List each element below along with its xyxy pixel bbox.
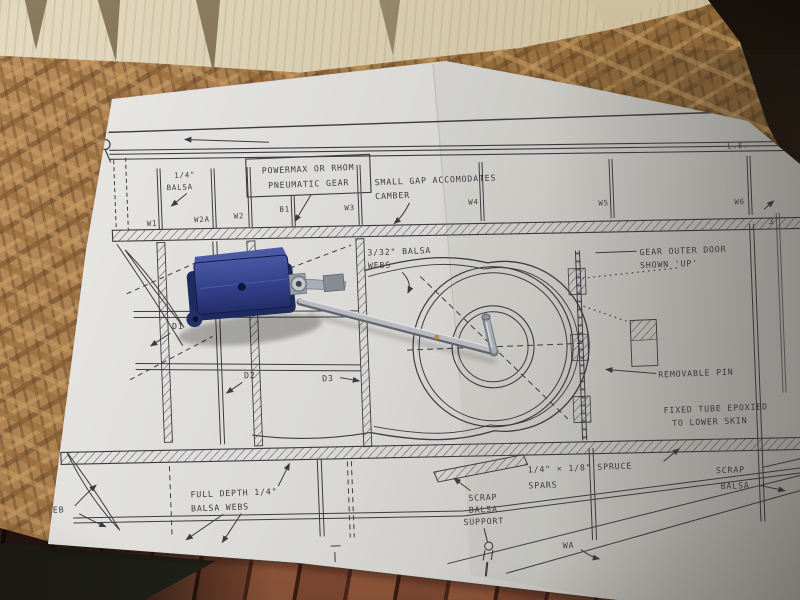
workshop-scene: L.E. W1 W2A W2 B bbox=[0, 0, 800, 600]
detail-label-d3: D3 bbox=[322, 373, 334, 383]
note-quarter-balsa-line2: BALSA bbox=[167, 182, 194, 192]
rib-label-w2a: W2A bbox=[194, 215, 210, 225]
note-scrap-support-line1: SCRAP bbox=[468, 492, 497, 503]
note-small-gap-line2: CAMBER bbox=[375, 190, 410, 201]
plan-photo: L.E. W1 W2A W2 B bbox=[0, 0, 800, 600]
rib-label-w4: W4 bbox=[468, 197, 479, 206]
note-scrap-support-line3: SUPPORT bbox=[463, 515, 504, 527]
note-quarter-balsa-line1: 1/4" bbox=[174, 170, 195, 180]
web-label: WEB bbox=[47, 504, 65, 515]
rib-label-w2: W2 bbox=[233, 211, 244, 220]
paper-shade bbox=[540, 50, 800, 600]
rib-label-w1: W1 bbox=[147, 219, 158, 228]
note-332-webs-line2: WEBS bbox=[368, 260, 392, 271]
note-scrap-support-line2: BALSA bbox=[469, 504, 498, 515]
rib-label-w3: W3 bbox=[344, 203, 355, 212]
detail-label-d2: D2 bbox=[244, 370, 256, 380]
rib-label-b1: B1 bbox=[279, 204, 290, 213]
strut-glint bbox=[435, 335, 440, 340]
detail-label-d1: D1 bbox=[172, 321, 184, 331]
